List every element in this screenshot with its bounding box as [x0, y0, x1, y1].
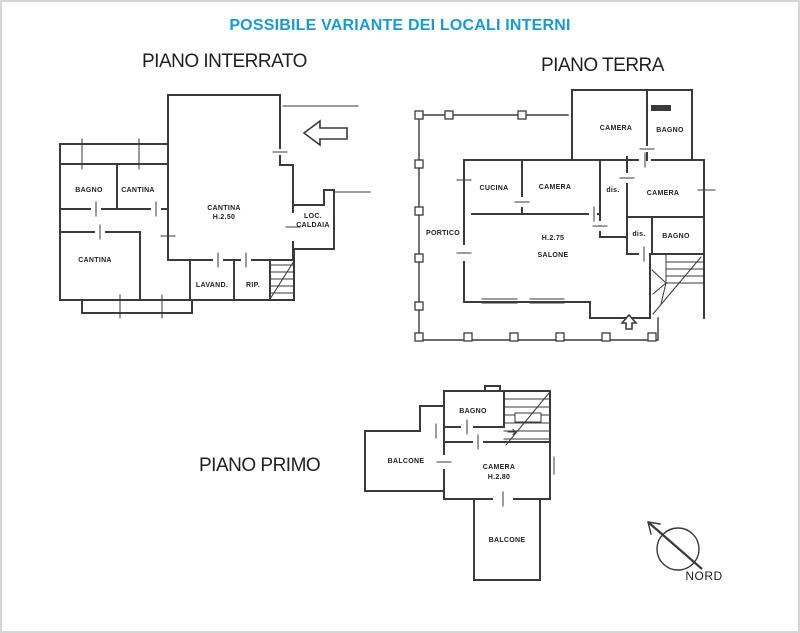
room-label-balcone-sud: BALCONE [489, 537, 526, 544]
interrato-walls [60, 95, 334, 313]
room-label-cantina-top: CANTINA [121, 187, 155, 194]
primo-stairs [504, 393, 550, 445]
entrance-arrow-icon [304, 121, 347, 145]
floor-plans-canvas: BAGNO CANTINA CANTINA CANTINA H.2.50 LOC… [2, 2, 800, 633]
compass-needle-icon [648, 522, 702, 569]
compass-label: NORD [685, 569, 722, 583]
room-label-balcone-ovest: BALCONE [388, 458, 425, 465]
piano-interrato-plan: BAGNO CANTINA CANTINA CANTINA H.2.50 LOC… [60, 95, 370, 318]
room-label-salone: SALONE [538, 252, 569, 259]
room-label-camera-est: CAMERA [647, 190, 680, 197]
room-label-cantina-left: CANTINA [78, 257, 112, 264]
piano-terra-plan: CAMERA BAGNO CUCINA CAMERA dis. CAMERA P… [415, 90, 715, 341]
bagno-window-sill [651, 105, 671, 111]
terra-openings-and-windows [457, 149, 715, 303]
terra-stairs [652, 254, 704, 314]
room-label-dis-centro: dis. [606, 187, 619, 194]
room-label-bagno-nord: BAGNO [656, 127, 684, 134]
floor-plan-sheet: POSSIBILE VARIANTE DEI LOCALI INTERNI PI… [0, 0, 800, 633]
north-compass: NORD [648, 522, 723, 583]
room-label-camera-primo: CAMERA [483, 464, 516, 471]
primo-openings-and-windows [436, 420, 554, 506]
terra-building-walls [464, 90, 704, 318]
room-label-bagno-primo: BAGNO [459, 408, 487, 415]
room-label-ripostiglio: RIP. [246, 282, 260, 289]
room-label-loc-caldaia-line2: CALDAIA [296, 222, 330, 229]
terra-portico-columns [415, 111, 656, 341]
room-label-cucina: CUCINA [479, 185, 508, 192]
room-label-lavanderia: LAVAND. [196, 282, 228, 289]
room-label-salone-height: H.2.75 [542, 235, 564, 242]
room-label-bagno-est: BAGNO [662, 233, 690, 240]
interrato-stairs [270, 261, 294, 299]
terra-portico-walls [419, 115, 658, 340]
piano-primo-plan: BAGNO BALCONE CAMERA H.2.80 BALCONE [365, 386, 554, 580]
room-label-loc-caldaia-line1: LOC. [304, 213, 322, 220]
room-label-cantina-main: CANTINA [207, 205, 241, 212]
room-label-camera-centro: CAMERA [539, 184, 572, 191]
room-label-camera-primo-height: H.2.80 [488, 474, 510, 481]
room-label-cantina-main-height: H.2.50 [213, 214, 235, 221]
room-label-dis-est: dis. [632, 231, 645, 238]
room-label-portico: PORTICO [426, 230, 460, 237]
room-label-bagno-interrato: BAGNO [75, 187, 103, 194]
room-label-camera-nord: CAMERA [600, 125, 633, 132]
